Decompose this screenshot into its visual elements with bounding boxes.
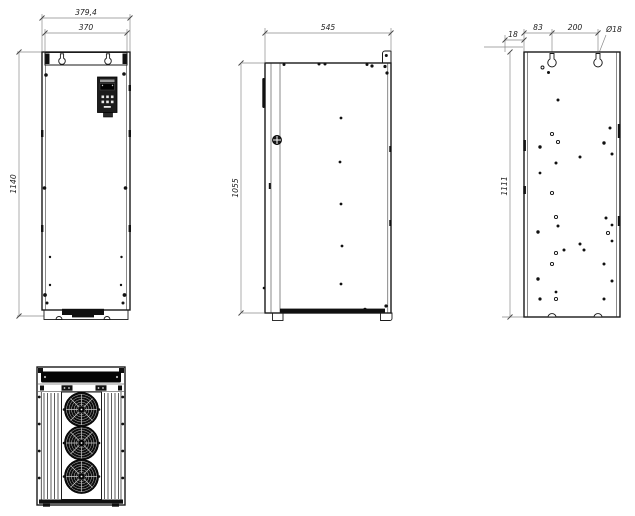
side-dim-height-label: 1055 — [231, 178, 240, 197]
connector-block-right — [96, 385, 107, 390]
rear-dim-hole-diameter: Ø18 — [599, 25, 622, 53]
side-dim-depth-label: 545 — [321, 23, 336, 32]
rear-bottom-notch-left — [548, 314, 556, 317]
rear-view: 18 83 200 Ø18 1111 — [484, 23, 622, 320]
rear-dim-hole-offset: 83 — [522, 23, 555, 36]
front-keypad — [98, 77, 118, 117]
connector-block-left — [62, 385, 73, 390]
front-dim-overall-width-label: 379,4 — [75, 8, 97, 17]
side-body — [265, 63, 391, 313]
drawing-canvas: 379,4 370 1140 — [0, 0, 635, 516]
rear-dim-hole-diameter-label: Ø18 — [605, 25, 622, 34]
front-dim-mounting-width-label: 370 — [79, 23, 94, 32]
side-dim-height: 1055 — [231, 61, 244, 316]
front-dim-overall-width: 379,4 — [40, 8, 133, 21]
fan-1 — [65, 393, 99, 427]
fan-2 — [65, 426, 99, 460]
side-hanging-hook — [383, 51, 392, 63]
bottom-view — [37, 367, 125, 507]
fan-3 — [65, 460, 99, 494]
rear-panel-body — [524, 52, 620, 317]
side-view: 545 1055 — [231, 23, 394, 321]
technical-drawing-page: 379,4 370 1140 — [0, 0, 635, 516]
rear-dim-edge-offset-label: 18 — [508, 30, 518, 39]
side-keypad-profile — [262, 78, 265, 108]
keypad-tab — [104, 113, 113, 118]
front-bottom-flange — [44, 309, 128, 320]
side-dim-depth: 545 — [263, 23, 394, 36]
side-latch-screw — [272, 135, 281, 144]
cooling-fans — [65, 393, 99, 494]
rear-bottom-notch-right — [594, 314, 602, 317]
rear-dim-height: 1111 — [500, 50, 513, 320]
rear-dim-hole-offset-label: 83 — [533, 23, 543, 32]
front-dim-mounting-width: 370 — [43, 23, 130, 36]
rear-dim-hole-spacing-label: 200 — [568, 23, 583, 32]
rear-dim-hole-spacing: 200 — [552, 23, 601, 36]
rear-dim-height-label: 1111 — [500, 176, 509, 195]
rear-dim-edge-offset: 18 — [503, 30, 527, 43]
side-bottom — [273, 309, 393, 321]
front-dim-height: 1140 — [9, 50, 22, 319]
front-dim-height-label: 1140 — [9, 174, 18, 193]
front-view: 379,4 370 1140 — [9, 8, 133, 320]
